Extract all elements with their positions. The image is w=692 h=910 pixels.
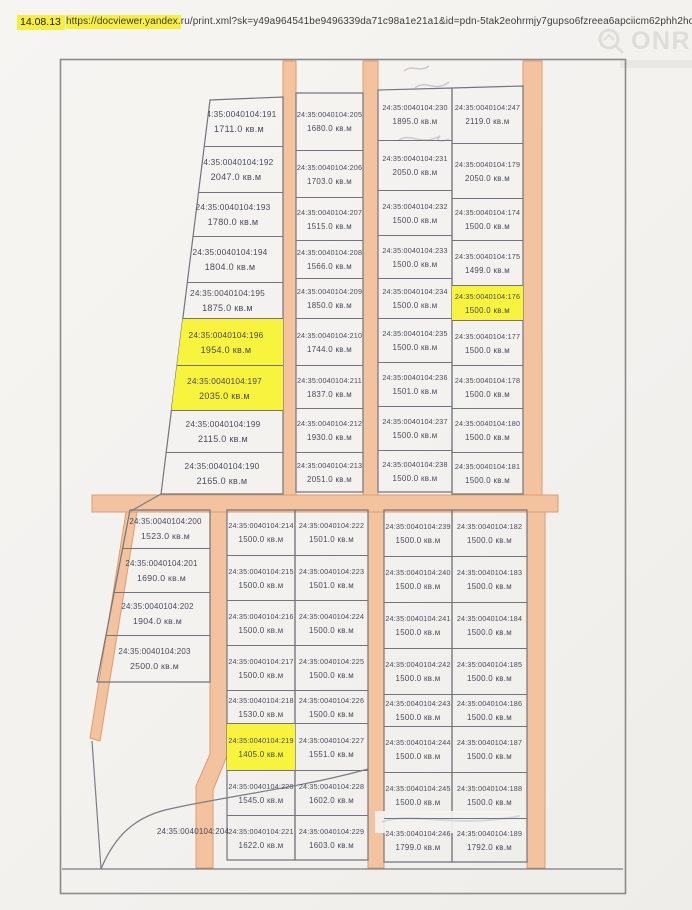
parcel-column-bottom-right: 24:35:0040104:1821500.0 кв.м24:35:004010…: [452, 510, 527, 862]
plot-cell-225: 24:35:0040104:2251500.0 кв.м: [295, 645, 368, 690]
plot-number: 24:35:0040104:247: [455, 103, 520, 112]
plot-area: 1954.0 кв.м: [201, 345, 252, 355]
plot-cell-192: 24:35:0040104:1922047.0 кв.м: [161, 146, 283, 192]
parcel-column-bottom-mid-left: 24:35:0040104:2141500.0 кв.м24:35:004010…: [227, 510, 295, 860]
plot-area: 1500.0 кв.м: [309, 671, 354, 680]
plot-area: 1780.0 кв.м: [208, 217, 259, 227]
plot-area: 2500.0 кв.м: [130, 661, 179, 671]
plot-number: 24:35:0040104:178: [455, 376, 520, 385]
plot-number: 24:35:0040104:243: [385, 699, 450, 708]
plot-area: 1850.0 кв.м: [307, 301, 352, 310]
plot-number: 24:35:0040104:242: [385, 660, 450, 669]
plot-area: 1500.0 кв.м: [393, 301, 438, 310]
plot-number: 24:35:0040104:241: [385, 614, 450, 623]
plot-area: 1500.0 кв.м: [393, 260, 438, 269]
plot-cell-229: 24:35:0040104:2291603.0 кв.м: [295, 815, 368, 860]
plot-cell-201: 24:35:0040104:2011690.0 кв.м: [97, 548, 210, 592]
plot-number: 24:35:0040104:197: [187, 376, 262, 386]
plot-cell-194: 24:35:0040104:1941804.0 кв.м: [161, 236, 283, 282]
plot-cell-240: 24:35:0040104:2401500.0 кв.м: [384, 556, 452, 602]
plot-number: 24:35:0040104:204: [157, 827, 229, 836]
plot-cell-239: 24:35:0040104:2391500.0 кв.м: [384, 510, 452, 556]
plot-area: 1500.0 кв.м: [396, 536, 441, 545]
plot-number: 24:35:0040104:246: [385, 829, 450, 838]
plot-cell-223: 24:35:0040104:2231501.0 кв.м: [295, 555, 368, 600]
plot-number: 24:35:0040104:177: [455, 332, 520, 341]
plot-cell-218: 24:35:0040104:2181530.0 кв.м: [227, 690, 295, 723]
plot-cell-228: 24:35:0040104:2281602.0 кв.м: [295, 770, 368, 815]
plot-area: 2050.0 кв.м: [465, 174, 510, 183]
plot-number: 24:35:0040104:212: [297, 419, 362, 428]
plot-cell-219: 24:35:0040104:2191405.0 кв.м: [227, 723, 295, 770]
plot-area: 1500.0 кв.м: [465, 390, 510, 399]
plot-number: 24:35:0040104:230: [382, 103, 447, 112]
plot-number: 24:35:0040104:200: [129, 517, 201, 526]
plot-area: 1501.0 кв.м: [309, 581, 354, 590]
plot-cell-175: 24:35:0040104:1751499.0 кв.м: [452, 240, 523, 285]
plot-number: 24:35:0040104:218: [228, 696, 293, 705]
plot-area: 1500.0 кв.м: [239, 535, 284, 544]
plot-area: 1690.0 кв.м: [137, 573, 186, 583]
plot-number: 24:35:0040104:187: [457, 738, 522, 747]
plot-number: 24:35:0040104:235: [382, 329, 447, 338]
plot-cell-178: 24:35:0040104:1781500.0 кв.м: [452, 365, 523, 408]
plot-area: 1500.0 кв.м: [467, 674, 512, 683]
plot-number: 24:35:0040104:174: [455, 208, 520, 217]
plot-cell-215: 24:35:0040104:2151500.0 кв.м: [227, 555, 295, 600]
plot-area: 1500.0 кв.м: [239, 671, 284, 680]
plot-area: 1500.0 кв.м: [396, 713, 441, 722]
plot-area: 2119.0 кв.м: [465, 117, 509, 126]
plot-number: 24:35:0040104:176: [455, 292, 520, 301]
plot-cell-245: 24:35:0040104:2451500.0 кв.м: [384, 772, 452, 818]
plot-cell-182: 24:35:0040104:1821500.0 кв.м: [452, 510, 527, 556]
plot-cell-241: 24:35:0040104:2411500.0 кв.м: [384, 602, 452, 648]
plot-number: 24:35:0040104:193: [196, 202, 271, 212]
plot-area: 1711.0 кв.м: [214, 124, 264, 134]
plot-area: 1501.0 кв.м: [393, 387, 438, 396]
plot-area: 1930.0 кв.м: [307, 433, 352, 442]
plot-area: 1895.0 кв.м: [393, 117, 438, 126]
plot-number: 24:35:0040104:191: [202, 109, 277, 119]
plot-area: 1904.0 кв.м: [133, 616, 182, 626]
plot-cell-191: 24:35:0040104:1911711.0 кв.м: [161, 97, 283, 146]
plot-number: 24:35:0040104:195: [190, 288, 265, 298]
plot-cell-242: 24:35:0040104:2421500.0 кв.м: [384, 648, 452, 694]
plot-number: 24:35:0040104:210: [297, 331, 362, 340]
plot-cell-246: 24:35:0040104:2461799.0 кв.м: [384, 818, 452, 862]
plot-number: 24:35:0040104:208: [297, 248, 362, 257]
plot-number: 24:35:0040104:192: [199, 157, 274, 167]
plot-cell-230: 24:35:0040104:2301895.0 кв.м: [378, 88, 452, 140]
parcel-column-top-mid-left: 24:35:0040104:2051680.0 кв.м24:35:004010…: [296, 93, 363, 492]
plot-number: 24:35:0040104:219: [228, 736, 293, 745]
plot-area: 1523.0 кв.м: [141, 531, 190, 541]
parcel-column-bottom-mid-right: 24:35:0040104:2391500.0 кв.м24:35:004010…: [384, 510, 452, 862]
plot-number: 24:35:0040104:237: [382, 417, 447, 426]
plot-area: 1500.0 кв.м: [396, 674, 441, 683]
plot-cell-227: 24:35:0040104:2271551.0 кв.м: [295, 723, 368, 770]
plot-area: 1500.0 кв.м: [467, 798, 512, 807]
plot-cell-200: 24:35:0040104:2001523.0 кв.м: [97, 510, 210, 548]
plot-area: 2165.0 кв.м: [197, 476, 248, 486]
plot-number: 24:35:0040104:227: [299, 736, 364, 745]
plot-cell-195: 24:35:0040104:1951875.0 кв.м: [161, 282, 283, 318]
plot-cell-181: 24:35:0040104:1811500.0 кв.м: [452, 452, 523, 494]
plot-cell-212: 24:35:0040104:2121930.0 кв.м: [296, 408, 363, 452]
plot-number: 24:35:0040104:239: [385, 522, 450, 531]
plot-area: 1500.0 кв.м: [467, 628, 512, 637]
parcel-column-top-mid-right: 24:35:0040104:2301895.0 кв.м24:35:004010…: [378, 88, 452, 492]
plot-area: 2115.0 кв.м: [198, 434, 248, 444]
plot-cell-187: 24:35:0040104:1871500.0 кв.м: [452, 726, 527, 772]
plot-number: 24:35:0040104:185: [457, 660, 522, 669]
plot-number: 24:35:0040104:216: [228, 612, 293, 621]
plot-number: 24:35:0040104:215: [228, 567, 293, 576]
plot-cell-199: 24:35:0040104:1992115.0 кв.м: [161, 410, 283, 452]
plot-area: 2050.0 кв.м: [393, 168, 438, 177]
plot-number: 24:35:0040104:201: [125, 559, 197, 568]
plot-number: 24:35:0040104:184: [457, 614, 522, 623]
plot-number: 24:35:0040104:190: [185, 461, 260, 471]
plot-cell-224: 24:35:0040104:2241500.0 кв.м: [295, 600, 368, 645]
plot-number: 24:35:0040104:220: [228, 782, 293, 791]
plot-number: 24:35:0040104:213: [297, 461, 362, 470]
plot-cell-206: 24:35:0040104:2061703.0 кв.м: [296, 150, 363, 197]
plot-number: 24:35:0040104:188: [457, 784, 522, 793]
plot-area: 1603.0 кв.м: [309, 841, 354, 850]
plot-cell-226: 24:35:0040104:2261500.0 кв.м: [295, 690, 368, 723]
plot-number: 24:35:0040104:240: [385, 568, 450, 577]
plot-cell-216: 24:35:0040104:2161500.0 кв.м: [227, 600, 295, 645]
plot-area: 1500.0 кв.м: [239, 581, 284, 590]
plot-area: 1515.0 кв.м: [307, 222, 352, 231]
plot-number: 24:35:0040104:221: [228, 827, 293, 836]
plot-number: 24:35:0040104:232: [382, 202, 447, 211]
plot-cell-208: 24:35:0040104:2081566.0 кв.м: [296, 240, 363, 278]
plot-number: 24:35:0040104:189: [457, 829, 522, 838]
plot-number: 24:35:0040104:194: [193, 247, 268, 257]
plot-area: 1500.0 кв.м: [393, 343, 438, 352]
plot-area: 1680.0 кв.м: [307, 124, 352, 133]
plot-cell-209: 24:35:0040104:2091850.0 кв.м: [296, 278, 363, 318]
plot-number: 24:35:0040104:238: [382, 460, 447, 469]
plot-cell-184: 24:35:0040104:1841500.0 кв.м: [452, 602, 527, 648]
plot-area: 1499.0 кв.м: [465, 266, 510, 275]
plot-area: 2035.0 кв.м: [199, 391, 250, 401]
plot-area: 1500.0 кв.м: [396, 798, 441, 807]
plot-area: 1804.0 кв.м: [205, 262, 256, 272]
plot-area: 1500.0 кв.м: [393, 216, 438, 225]
plot-area: 1500.0 кв.м: [467, 713, 512, 722]
plot-cell-203: 24:35:0040104:2032500.0 кв.м: [97, 635, 210, 682]
plots-layer: 24:35:0040104:204 24:35:0040104:1911711.…: [0, 0, 692, 910]
plot-cell-185: 24:35:0040104:1851500.0 кв.м: [452, 648, 527, 694]
plot-cell-210: 24:35:0040104:2101744.0 кв.м: [296, 318, 363, 365]
parcel-column-bottom-mid: 24:35:0040104:2221501.0 кв.м24:35:004010…: [295, 510, 368, 860]
plot-cell-221: 24:35:0040104:2211622.0 кв.м: [227, 815, 295, 860]
plot-cell-188: 24:35:0040104:1881500.0 кв.м: [452, 772, 527, 818]
plot-number: 24:35:0040104:209: [297, 287, 362, 296]
plot-cell-232: 24:35:0040104:2321500.0 кв.м: [378, 190, 452, 235]
plot-number: 24:35:0040104:231: [382, 154, 447, 163]
plot-number: 24:35:0040104:234: [382, 287, 447, 296]
plot-cell-197: 24:35:0040104:1972035.0 кв.м: [161, 365, 283, 410]
plot-area: 1501.0 кв.м: [309, 535, 354, 544]
plot-cell-189: 24:35:0040104:1891792.0 кв.м: [452, 818, 527, 862]
plot-number: 24:35:0040104:186: [457, 699, 522, 708]
plot-number: 24:35:0040104:199: [186, 419, 261, 429]
plot-number: 24:35:0040104:203: [118, 647, 190, 656]
plot-cell-244: 24:35:0040104:2441500.0 кв.м: [384, 726, 452, 772]
plot-number: 24:35:0040104:179: [455, 160, 520, 169]
plot-number: 24:35:0040104:202: [121, 602, 193, 611]
plot-cell-231: 24:35:0040104:2312050.0 кв.м: [378, 140, 452, 190]
plot-number: 24:35:0040104:183: [457, 568, 522, 577]
plot-cell-202: 24:35:0040104:2021904.0 кв.м: [97, 592, 210, 635]
plot-number: 24:35:0040104:180: [455, 419, 520, 428]
plot-number: 24:35:0040104:217: [228, 657, 293, 666]
plot-number: 24:35:0040104:244: [385, 738, 450, 747]
plot-number: 24:35:0040104:224: [299, 612, 364, 621]
plot-cell-207: 24:35:0040104:2071515.0 кв.м: [296, 197, 363, 240]
plot-number: 24:35:0040104:214: [228, 521, 293, 530]
plot-area: 1837.0 кв.м: [307, 390, 352, 399]
plot-area: 1566.0 кв.м: [307, 262, 352, 271]
plot-number: 24:35:0040104:196: [189, 330, 264, 340]
plot-area: 2047.0 кв.м: [211, 172, 262, 182]
plot-cell-247: 24:35:0040104:2472119.0 кв.м: [452, 86, 523, 143]
plot-number: 24:35:0040104:205: [297, 110, 362, 119]
plot-area: 1405.0 кв.м: [239, 750, 284, 759]
plot-area: 1500.0 кв.м: [467, 536, 512, 545]
plot-number: 24:35:0040104:225: [299, 657, 364, 666]
plot-cell-238: 24:35:0040104:2381500.0 кв.м: [378, 450, 452, 492]
plot-number: 24:35:0040104:175: [455, 252, 520, 261]
plot-number: 24:35:0040104:236: [382, 373, 447, 382]
plot-cell-220: 24:35:0040104:2201545.0 кв.м: [227, 770, 295, 815]
plot-cell-174: 24:35:0040104:1741500.0 кв.м: [452, 198, 523, 240]
scanned-page: 14.08.13 https://docviewer.yandex.ru/pri…: [0, 0, 692, 910]
plot-cell-186: 24:35:0040104:1861500.0 кв.м: [452, 694, 527, 726]
plot-cell-183: 24:35:0040104:1831500.0 кв.м: [452, 556, 527, 602]
plot-cell-213: 24:35:0040104:2132051.0 кв.м: [296, 452, 363, 492]
plot-cell-217: 24:35:0040104:2171500.0 кв.м: [227, 645, 295, 690]
plot-area: 1500.0 кв.м: [309, 626, 354, 635]
plot-cell-190: 24:35:0040104:1902165.0 кв.м: [161, 452, 283, 494]
plot-number: 24:35:0040104:206: [297, 163, 362, 172]
plot-cell-180: 24:35:0040104:1801500.0 кв.м: [452, 408, 523, 452]
plot-number: 24:35:0040104:228: [299, 782, 364, 791]
plot-area: 1500.0 кв.м: [465, 346, 510, 355]
plot-cell-235: 24:35:0040104:2351500.0 кв.м: [378, 318, 452, 362]
plot-area: 1500.0 кв.м: [393, 431, 438, 440]
plot-area: 1500.0 кв.м: [393, 474, 438, 483]
plot-number: 24:35:0040104:211: [297, 376, 362, 385]
plot-number: 24:35:0040104:245: [385, 784, 450, 793]
plot-area: 1500.0 кв.м: [467, 752, 512, 761]
plot-cell-211: 24:35:0040104:2111837.0 кв.м: [296, 365, 363, 408]
plot-cell-236: 24:35:0040104:2361501.0 кв.м: [378, 362, 452, 406]
plot-area: 1799.0 кв.м: [396, 843, 441, 852]
plot-area: 1530.0 кв.м: [239, 710, 284, 719]
plot-area: 1551.0 кв.м: [309, 750, 354, 759]
plot-number: 24:35:0040104:223: [299, 567, 364, 576]
plot-number: 24:35:0040104:207: [297, 208, 362, 217]
plot-cell-196: 24:35:0040104:1961954.0 кв.м: [161, 318, 283, 365]
plot-area: 1500.0 кв.м: [465, 222, 510, 231]
plot-area: 1792.0 кв.м: [467, 843, 512, 852]
plot-area: 2051.0 кв.м: [307, 475, 352, 484]
plot-cell-205: 24:35:0040104:2051680.0 кв.м: [296, 93, 363, 150]
plot-cell-214: 24:35:0040104:2141500.0 кв.м: [227, 510, 295, 555]
plot-cell-193: 24:35:0040104:1931780.0 кв.м: [161, 192, 283, 236]
plot-area: 1875.0 кв.м: [202, 303, 253, 313]
plot-area: 1500.0 кв.м: [467, 582, 512, 591]
plot-area: 1500.0 кв.м: [465, 476, 510, 485]
plot-area: 1545.0 кв.м: [239, 796, 284, 805]
plot-cell-176: 24:35:0040104:1761500.0 кв.м: [452, 285, 523, 320]
plot-cell-222: 24:35:0040104:2221501.0 кв.м: [295, 510, 368, 555]
plot-number: 24:35:0040104:229: [299, 827, 364, 836]
plot-area: 1500.0 кв.м: [396, 628, 441, 637]
plot-area: 1622.0 кв.м: [239, 841, 284, 850]
plot-area: 1500.0 кв.м: [465, 433, 510, 442]
plot-cell-177: 24:35:0040104:1771500.0 кв.м: [452, 320, 523, 365]
plot-number: 24:35:0040104:226: [299, 696, 364, 705]
plot-cell-179: 24:35:0040104:1792050.0 кв.м: [452, 143, 523, 198]
parcel-column-top-right: 24:35:0040104:2472119.0 кв.м24:35:004010…: [452, 86, 523, 494]
plot-area: 1744.0 кв.м: [307, 345, 352, 354]
parcel-column-bottom-left: 24:35:0040104:2001523.0 кв.м24:35:004010…: [97, 510, 210, 682]
plot-area: 1500.0 кв.м: [239, 626, 284, 635]
plot-cell-233: 24:35:0040104:2331500.0 кв.м: [378, 235, 452, 278]
plot-number: 24:35:0040104:181: [455, 462, 520, 471]
plot-cell-234: 24:35:0040104:2341500.0 кв.м: [378, 278, 452, 318]
plot-area: 1500.0 кв.м: [396, 582, 441, 591]
plot-number: 24:35:0040104:222: [299, 521, 364, 530]
parcel-column-top-left: 24:35:0040104:1911711.0 кв.м24:35:004010…: [161, 97, 283, 494]
plot-area: 1500.0 кв.м: [396, 752, 441, 761]
plot-area: 1500.0 кв.м: [465, 306, 510, 315]
plot-cell-243: 24:35:0040104:2431500.0 кв.м: [384, 694, 452, 726]
plot-number: 24:35:0040104:233: [382, 246, 447, 255]
plot-area: 1500.0 кв.м: [309, 710, 354, 719]
plot-area: 1602.0 кв.м: [309, 796, 354, 805]
plot-cell-237: 24:35:0040104:2371500.0 кв.м: [378, 406, 452, 450]
plot-number: 24:35:0040104:182: [457, 522, 522, 531]
plot-area: 1703.0 кв.м: [307, 177, 352, 186]
